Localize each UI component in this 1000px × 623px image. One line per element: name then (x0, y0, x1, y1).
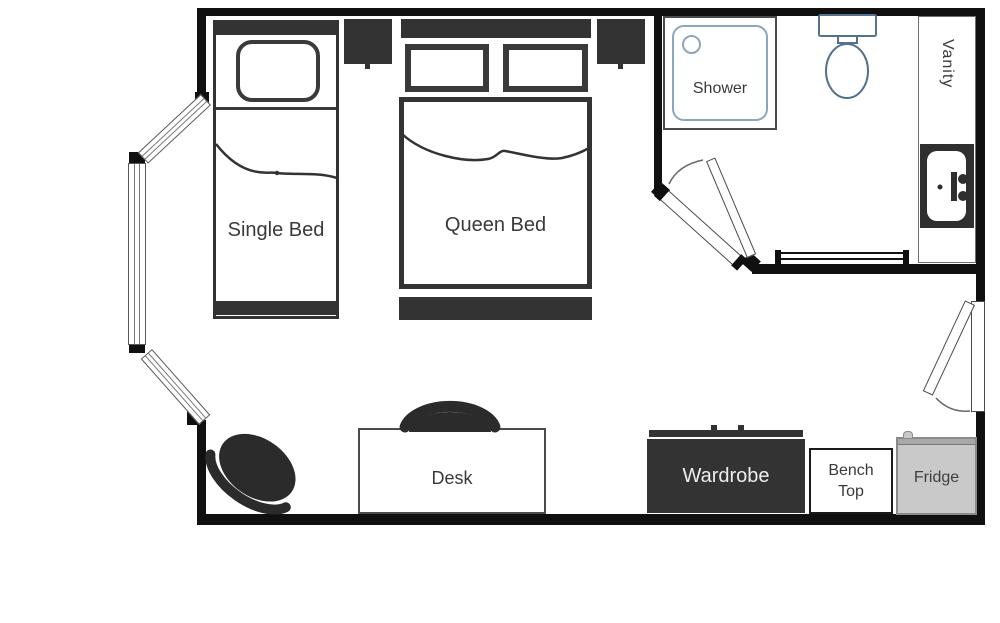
wall-right-upper (976, 8, 985, 302)
vanity-label: Vanity (938, 39, 956, 88)
wall-bottom (197, 514, 985, 525)
shower-drain-icon (682, 35, 701, 54)
entry-door-swing-arc (936, 398, 970, 411)
wardrobe: Wardrobe (647, 439, 805, 513)
wall-left-lower (197, 420, 206, 514)
fridge-label: Fridge (898, 469, 975, 487)
bay-window-upper-icon (138, 94, 211, 164)
sheet-line (216, 107, 336, 110)
lounge-chair-icon (200, 418, 312, 523)
shower-label: Shower (665, 80, 775, 98)
wardrobe-label: Wardrobe (682, 465, 769, 488)
floor-plan-canvas: Single Bed Queen Bed Shower Vanity Desk (0, 0, 1000, 623)
wall-left-upper (197, 8, 206, 100)
nightstand-icon (344, 19, 392, 64)
fridge: Fridge (896, 437, 977, 515)
pillow-icon (503, 44, 588, 92)
queen-bed-footboard (399, 297, 592, 320)
bay-window-lower-icon (141, 349, 211, 425)
fridge-hinge-icon (903, 431, 913, 438)
pillow-icon (236, 40, 320, 102)
bathroom-wall-bottom (752, 264, 985, 274)
bathroom-door-swing-arc (669, 160, 703, 184)
queen-bed-headboard (401, 19, 591, 38)
queen-bed: Queen Bed (399, 97, 592, 289)
single-bed-headboard (216, 23, 336, 35)
towel-rail-icon (776, 252, 908, 260)
shower-tray-icon: Shower (663, 16, 777, 130)
bench-top: Bench Top (809, 448, 893, 514)
bay-window-middle-icon (128, 163, 146, 345)
wall-top (197, 8, 985, 16)
entry-door-icon (971, 301, 985, 412)
wardrobe-rail (649, 430, 803, 437)
fridge-top-bar (898, 439, 975, 445)
entry-door-open-icon (923, 300, 975, 395)
bench-top-label: Bench Top (823, 460, 879, 502)
desk-label: Desk (360, 468, 544, 489)
queen-bed-label: Queen Bed (404, 214, 587, 237)
desk: Desk (358, 428, 546, 514)
single-bed-label: Single Bed (216, 216, 336, 244)
pillow-icon (405, 44, 489, 92)
vanity-counter: Vanity (918, 16, 976, 263)
nightstand-icon (597, 19, 645, 64)
bathroom-wall-left (654, 16, 662, 192)
single-bed-footboard (216, 301, 336, 315)
single-bed: Single Bed (213, 20, 339, 319)
wall-right-lower (976, 412, 985, 525)
toilet-icon (819, 15, 876, 98)
